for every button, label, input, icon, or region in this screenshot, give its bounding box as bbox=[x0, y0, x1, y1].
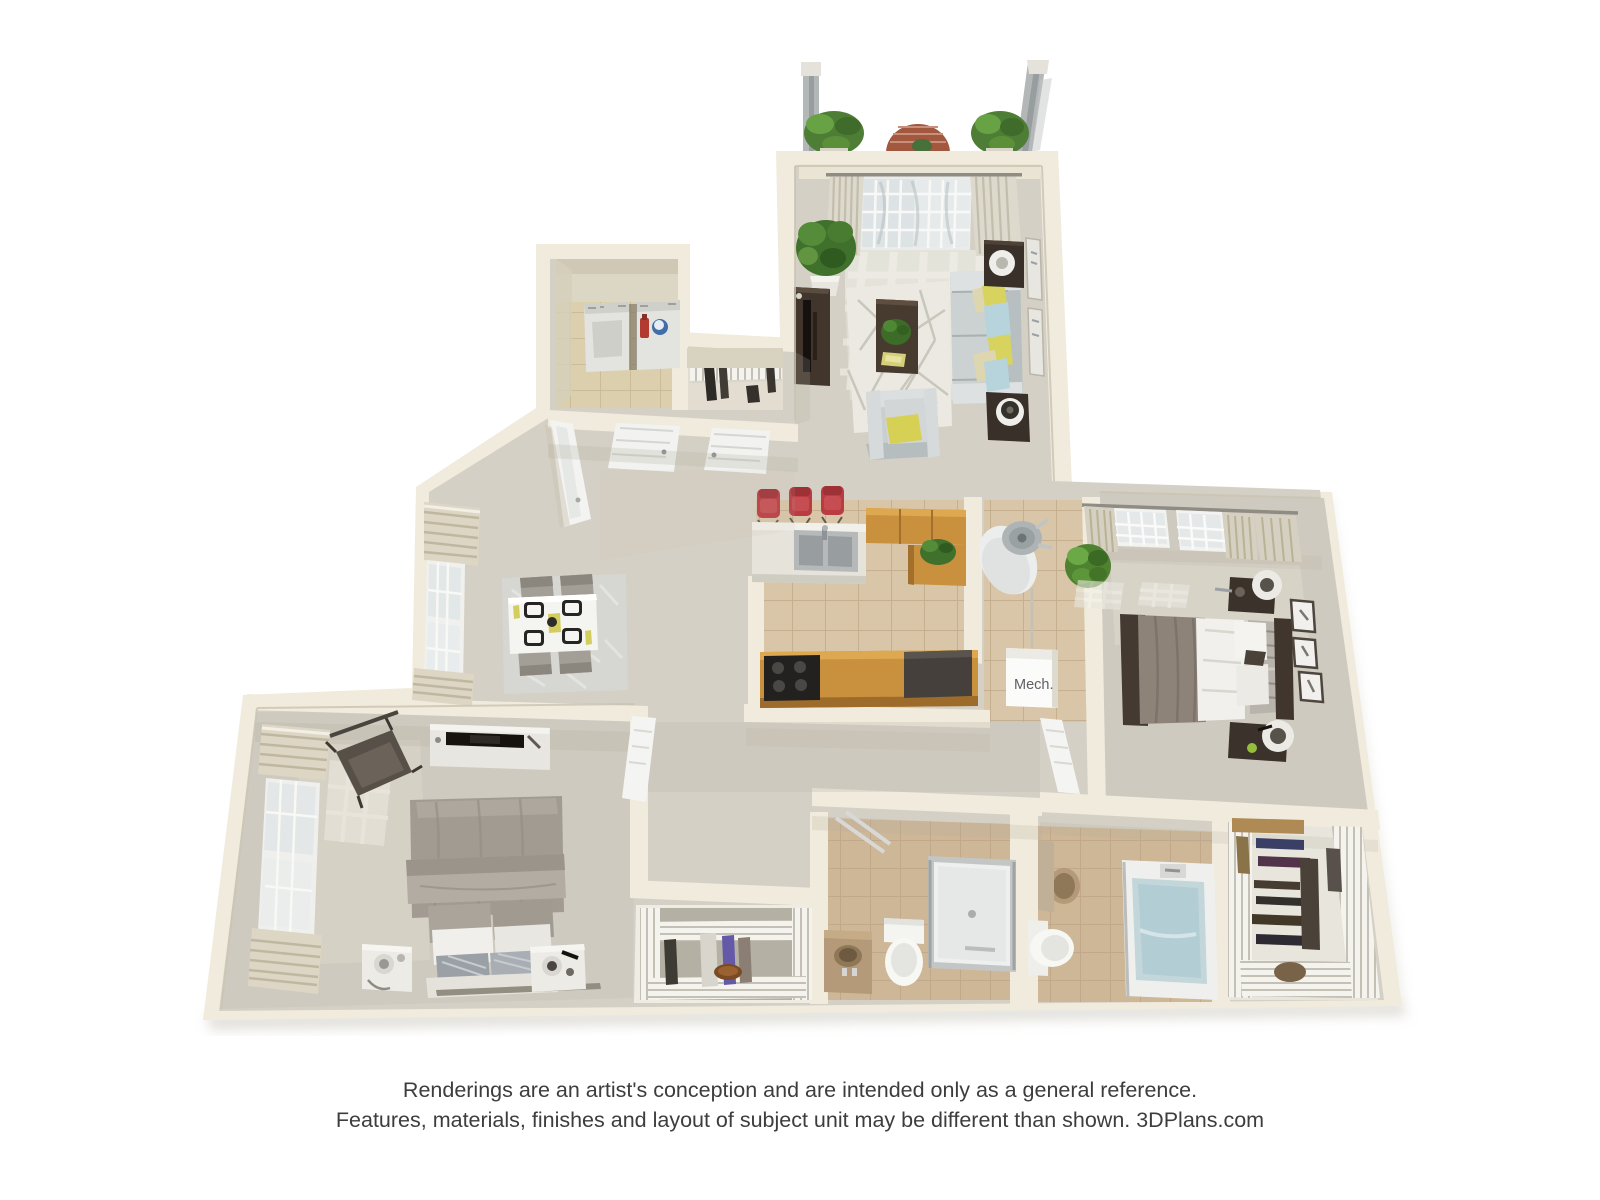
svg-text:Mech.: Mech. bbox=[1014, 677, 1054, 693]
